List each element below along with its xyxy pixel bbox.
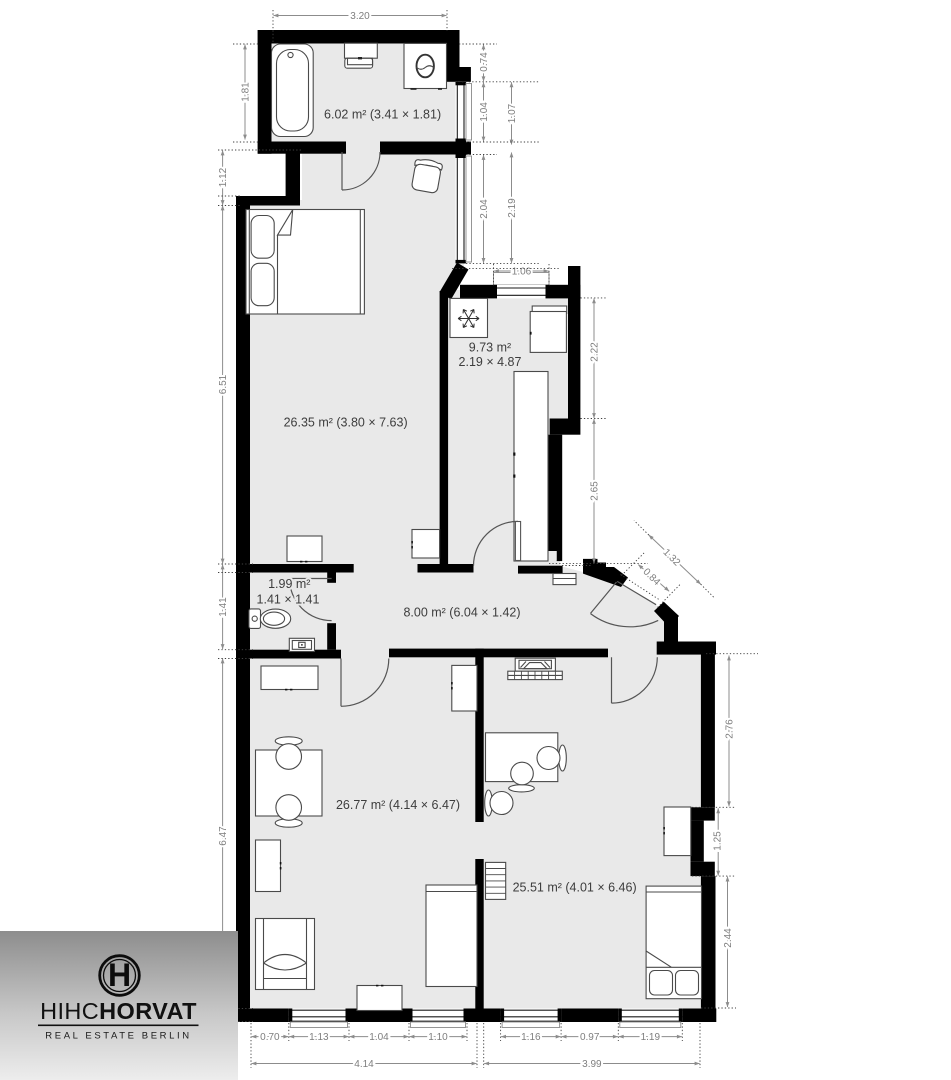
svg-text:8.00 m² (6.04 × 1.42): 8.00 m² (6.04 × 1.42) [403, 606, 520, 620]
svg-text:1.10: 1.10 [428, 1032, 448, 1043]
svg-text:3.99: 3.99 [582, 1059, 602, 1070]
svg-text:1.06: 1.06 [512, 267, 532, 278]
svg-text:2.04: 2.04 [479, 199, 490, 219]
svg-text:2.76: 2.76 [725, 719, 736, 739]
svg-text:1.04: 1.04 [479, 102, 490, 122]
svg-text:1.41 × 1.41: 1.41 × 1.41 [257, 593, 320, 607]
svg-text:1.25: 1.25 [712, 831, 723, 851]
svg-text:25.51 m² (4.01 × 6.46): 25.51 m² (4.01 × 6.46) [513, 881, 637, 895]
svg-text:1.99 m²: 1.99 m² [268, 577, 310, 591]
svg-text:1.32: 1.32 [661, 547, 683, 569]
svg-text:6.02 m² (3.41 × 1.81): 6.02 m² (3.41 × 1.81) [324, 108, 441, 122]
svg-text:0.70: 0.70 [260, 1032, 280, 1043]
svg-text:1.81: 1.81 [241, 82, 252, 102]
svg-text:1.13: 1.13 [309, 1032, 329, 1043]
svg-text:9.73 m²: 9.73 m² [469, 341, 511, 355]
svg-text:1.04: 1.04 [369, 1032, 389, 1043]
svg-text:1.12: 1.12 [218, 167, 229, 187]
svg-text:3.20: 3.20 [350, 11, 370, 22]
svg-text:26.35 m² (3.80 × 7.63): 26.35 m² (3.80 × 7.63) [284, 416, 408, 430]
svg-text:2.65: 2.65 [590, 481, 601, 501]
svg-text:4.14: 4.14 [354, 1059, 374, 1070]
svg-text:2.19 × 4.87: 2.19 × 4.87 [459, 355, 522, 369]
svg-text:26.77 m² (4.14 × 6.47): 26.77 m² (4.14 × 6.47) [336, 798, 460, 812]
svg-text:1.07: 1.07 [507, 103, 518, 123]
svg-text:1.41: 1.41 [218, 597, 229, 617]
svg-text:1.19: 1.19 [641, 1032, 661, 1043]
svg-text:REAL ESTATE BERLIN: REAL ESTATE BERLIN [45, 1031, 191, 1042]
svg-text:0.97: 0.97 [580, 1032, 600, 1043]
svg-text:0.74: 0.74 [479, 52, 490, 72]
svg-text:1.16: 1.16 [521, 1032, 541, 1043]
svg-text:0.84: 0.84 [641, 566, 663, 588]
svg-text:HIHCHORVAT: HIHCHORVAT [40, 998, 197, 1024]
svg-text:6.51: 6.51 [218, 374, 229, 394]
svg-text:2.44: 2.44 [723, 928, 734, 948]
svg-text:2.19: 2.19 [507, 198, 518, 218]
svg-text:2.22: 2.22 [590, 342, 601, 362]
svg-text:6.47: 6.47 [218, 826, 229, 846]
svg-text:H: H [108, 957, 131, 993]
